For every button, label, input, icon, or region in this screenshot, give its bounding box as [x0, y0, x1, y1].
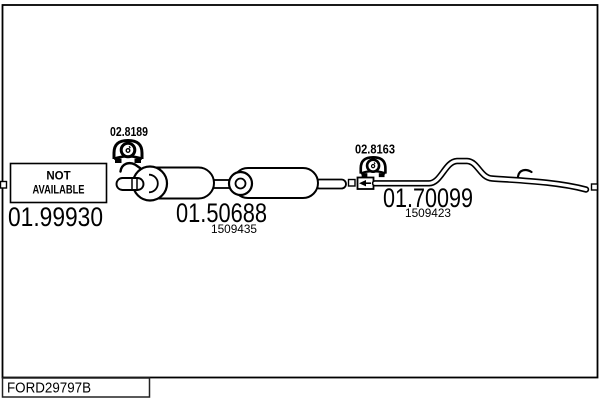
square-connector-left: [1, 182, 7, 189]
mount-code-rear: 02.8163: [355, 142, 395, 157]
mount-code-center: 02.8189: [110, 124, 148, 139]
exhaust-diagram-page: NOT AVAILABLE 01.99930 02.8189 01.50688 …: [0, 0, 600, 400]
hook-bracket-front: [121, 163, 141, 171]
front-section: NOT AVAILABLE 01.99930: [1, 164, 107, 233]
part-number-front: 01.99930: [8, 202, 103, 232]
outlet-pipe: [315, 180, 346, 189]
footer: FORD29797B: [3, 378, 150, 397]
center-muffler-assembly: 01.50688 1509435: [117, 163, 347, 236]
rubber-mount-icon: [114, 141, 142, 164]
not-available-line2: AVAILABLE: [33, 185, 85, 197]
rear-mount: 02.8163: [355, 142, 395, 178]
square-connector-right: [592, 184, 598, 190]
oe-reference-center: 1509435: [211, 224, 257, 236]
rubber-mount-icon: [361, 157, 386, 177]
inlet-ring-inner: [236, 179, 246, 189]
hook-bracket-rear: [518, 170, 532, 176]
oe-reference-rear: 1509423: [405, 208, 451, 220]
square-connector-mid: [349, 180, 356, 187]
exhaust-diagram: NOT AVAILABLE 01.99930 02.8189 01.50688 …: [0, 0, 600, 400]
not-available-box: [11, 164, 107, 203]
not-available-line1: NOT: [46, 171, 70, 183]
inlet-pipe: [117, 178, 144, 190]
drawing-code: FORD29797B: [7, 381, 91, 397]
center-mount: 02.8189: [110, 124, 148, 163]
